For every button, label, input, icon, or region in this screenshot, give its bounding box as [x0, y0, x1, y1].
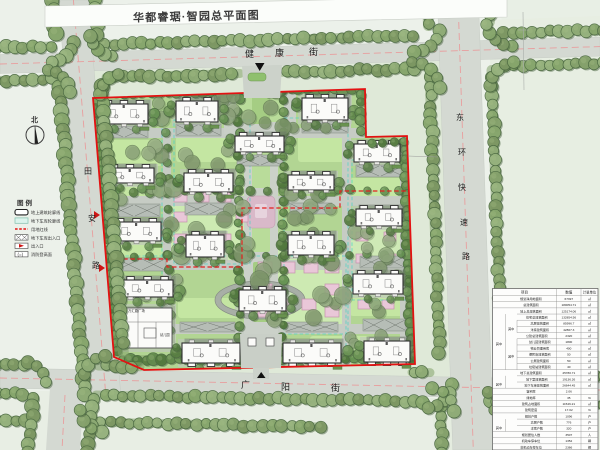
svg-text:40: 40: [567, 365, 571, 369]
svg-text:35: 35: [567, 396, 571, 400]
svg-text:其中: 其中: [508, 326, 514, 331]
svg-text:人: 人: [588, 433, 591, 437]
svg-text:26644.45: 26644.45: [562, 383, 575, 387]
svg-text:康: 康: [275, 47, 284, 58]
svg-text:2320: 2320: [565, 334, 572, 338]
svg-text:辆: 辆: [588, 444, 591, 449]
svg-text:规划净用地面积: 规划净用地面积: [520, 296, 542, 301]
svg-text:85996.7: 85996.7: [563, 322, 574, 326]
svg-text:建筑占地面积: 建筑占地面积: [522, 401, 541, 406]
svg-text:垃圾站建筑面积: 垃圾站建筑面积: [529, 364, 551, 369]
svg-text:地下车库建筑面积: 地下车库建筑面积: [524, 382, 549, 387]
svg-text:17.02: 17.02: [565, 408, 573, 412]
svg-text:%: %: [588, 396, 591, 400]
svg-text:公厕建筑面积: 公厕建筑面积: [531, 358, 550, 363]
svg-text:1096: 1096: [565, 414, 572, 418]
svg-text:2366: 2366: [565, 445, 572, 449]
svg-text:图例: 图例: [17, 198, 34, 207]
svg-text:路: 路: [462, 251, 470, 261]
svg-text:洋房户数: 洋房户数: [531, 426, 543, 431]
svg-text:132854.56: 132854.56: [561, 315, 576, 319]
svg-text:街: 街: [331, 382, 340, 393]
svg-text:规划户数: 规划户数: [525, 413, 537, 418]
svg-text:出入口: 出入口: [31, 243, 44, 250]
svg-text:户: 户: [588, 413, 591, 418]
svg-text:其中: 其中: [496, 341, 502, 346]
svg-text:项目: 项目: [521, 290, 528, 295]
svg-text:东: 东: [456, 112, 464, 122]
svg-text:消防登高面: 消防登高面: [31, 251, 52, 258]
svg-text:速: 速: [460, 218, 468, 227]
svg-text:776: 776: [566, 421, 571, 425]
svg-text:地下车库出入口: 地下车库出入口: [31, 234, 60, 241]
svg-text:180054.71: 180054.71: [561, 303, 576, 307]
svg-text:幼儿园建筑面积: 幼儿园建筑面积: [529, 339, 551, 344]
svg-text:非机动车停车位: 非机动车停车位: [520, 444, 542, 449]
svg-text:规划居住人数: 规划居住人数: [522, 432, 541, 437]
svg-text:田: 田: [84, 167, 92, 176]
svg-text:数值: 数值: [565, 290, 573, 295]
svg-text:总建筑面积: 总建筑面积: [523, 302, 538, 307]
svg-text:建筑密度: 建筑密度: [525, 407, 537, 412]
svg-text:1352: 1352: [565, 439, 572, 443]
svg-text:2.06: 2.06: [566, 390, 572, 394]
svg-text:(=): (=): [18, 252, 24, 257]
svg-text:安: 安: [88, 213, 96, 223]
svg-text:45780.71: 45780.71: [562, 371, 575, 375]
svg-text:地上总建筑面积: 地上总建筑面积: [520, 308, 542, 313]
svg-text:400: 400: [566, 346, 571, 350]
svg-text:便民店建筑面积: 便民店建筑面积: [529, 352, 551, 357]
svg-text:地下车库轮廓线: 地下车库轮廓线: [31, 218, 61, 225]
svg-text:19136.26: 19136.26: [562, 377, 575, 381]
svg-text:街: 街: [309, 46, 318, 57]
svg-text:高层户数: 高层户数: [531, 420, 543, 425]
svg-text:幼儿园: 幼儿园: [160, 332, 170, 337]
svg-text:阳: 阳: [281, 382, 290, 392]
svg-text:用地红线: 用地红线: [31, 226, 49, 233]
svg-text:3507: 3507: [565, 433, 572, 437]
svg-text:广: 广: [241, 379, 250, 390]
svg-text:健: 健: [245, 48, 254, 59]
svg-text:地上建筑轮廓线: 地上建筑轮廓线: [31, 209, 61, 216]
svg-text:计量单位: 计量单位: [583, 290, 597, 295]
svg-text:11546.21: 11546.21: [562, 402, 575, 406]
svg-text:50: 50: [567, 359, 571, 363]
svg-text:公建总建筑面积: 公建总建筑面积: [526, 333, 548, 338]
svg-text:其中: 其中: [508, 353, 514, 358]
svg-text:67397: 67397: [564, 297, 573, 301]
svg-text:其中: 其中: [496, 425, 502, 430]
svg-text:容积率: 容积率: [526, 389, 535, 394]
svg-text:地下室建筑面积: 地下室建筑面积: [526, 376, 548, 381]
svg-text:北: 北: [31, 115, 38, 124]
svg-text:洋房建筑面积: 洋房建筑面积: [531, 327, 550, 332]
svg-text:高层建筑面积: 高层建筑面积: [531, 321, 550, 326]
svg-text:快: 快: [458, 182, 466, 192]
svg-text:1800: 1800: [565, 340, 572, 344]
svg-text:户: 户: [588, 426, 591, 431]
svg-text:50: 50: [567, 353, 571, 357]
svg-text:地下总建筑面积: 地下总建筑面积: [520, 370, 542, 375]
svg-text:绿地率: 绿地率: [526, 395, 535, 400]
svg-text:%: %: [588, 408, 591, 412]
svg-text:环: 环: [458, 148, 466, 157]
svg-text:125174.06: 125174.06: [561, 309, 576, 313]
svg-text:路: 路: [92, 260, 100, 270]
svg-text:42867.3: 42867.3: [563, 328, 574, 332]
svg-text:万汇路广场: 万汇路广场: [128, 308, 146, 313]
svg-text:物业管理用房: 物业管理用房: [531, 345, 550, 350]
svg-text:320: 320: [566, 427, 571, 431]
svg-text:户: 户: [588, 420, 591, 425]
svg-text:辆: 辆: [588, 438, 591, 443]
svg-text:其中: 其中: [496, 382, 502, 387]
svg-text:住宅总建筑面积: 住宅总建筑面积: [526, 314, 548, 319]
svg-text:机动车停车位: 机动车停车位: [522, 438, 541, 443]
